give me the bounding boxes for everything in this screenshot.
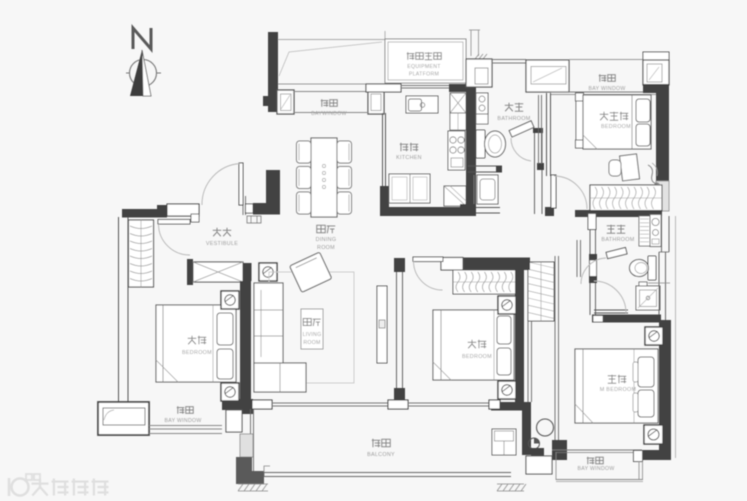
svg-text:BEDROOM: BEDROOM (601, 124, 631, 130)
svg-text:KITCHEN: KITCHEN (396, 155, 422, 161)
svg-text:ROOM: ROOM (303, 340, 320, 346)
svg-text:LIVING: LIVING (303, 332, 322, 338)
svg-text:DINING: DINING (316, 237, 337, 243)
svg-text:BEDROOM: BEDROOM (462, 354, 492, 360)
svg-text:BAY WINDOW: BAY WINDOW (588, 86, 625, 92)
svg-text:M BEDROOM: M BEDROOM (600, 387, 637, 393)
svg-text:EQUIPMENT: EQUIPMENT (407, 64, 441, 70)
svg-text:BALCONY: BALCONY (367, 452, 395, 458)
svg-text:BAY WINDOW: BAY WINDOW (577, 466, 614, 472)
svg-text:BATHROOM: BATHROOM (601, 237, 634, 243)
svg-text:BAYWINDOW: BAYWINDOW (311, 111, 346, 117)
svg-text:BEDROOM: BEDROOM (182, 350, 212, 356)
svg-text:ROOM: ROOM (317, 245, 335, 251)
svg-text:PLATFORM: PLATFORM (409, 72, 439, 78)
svg-text:BAY WINDOW: BAY WINDOW (164, 418, 201, 424)
svg-text:VESTIBULE: VESTIBULE (206, 241, 238, 247)
svg-text:BATHROOM: BATHROOM (497, 116, 530, 122)
